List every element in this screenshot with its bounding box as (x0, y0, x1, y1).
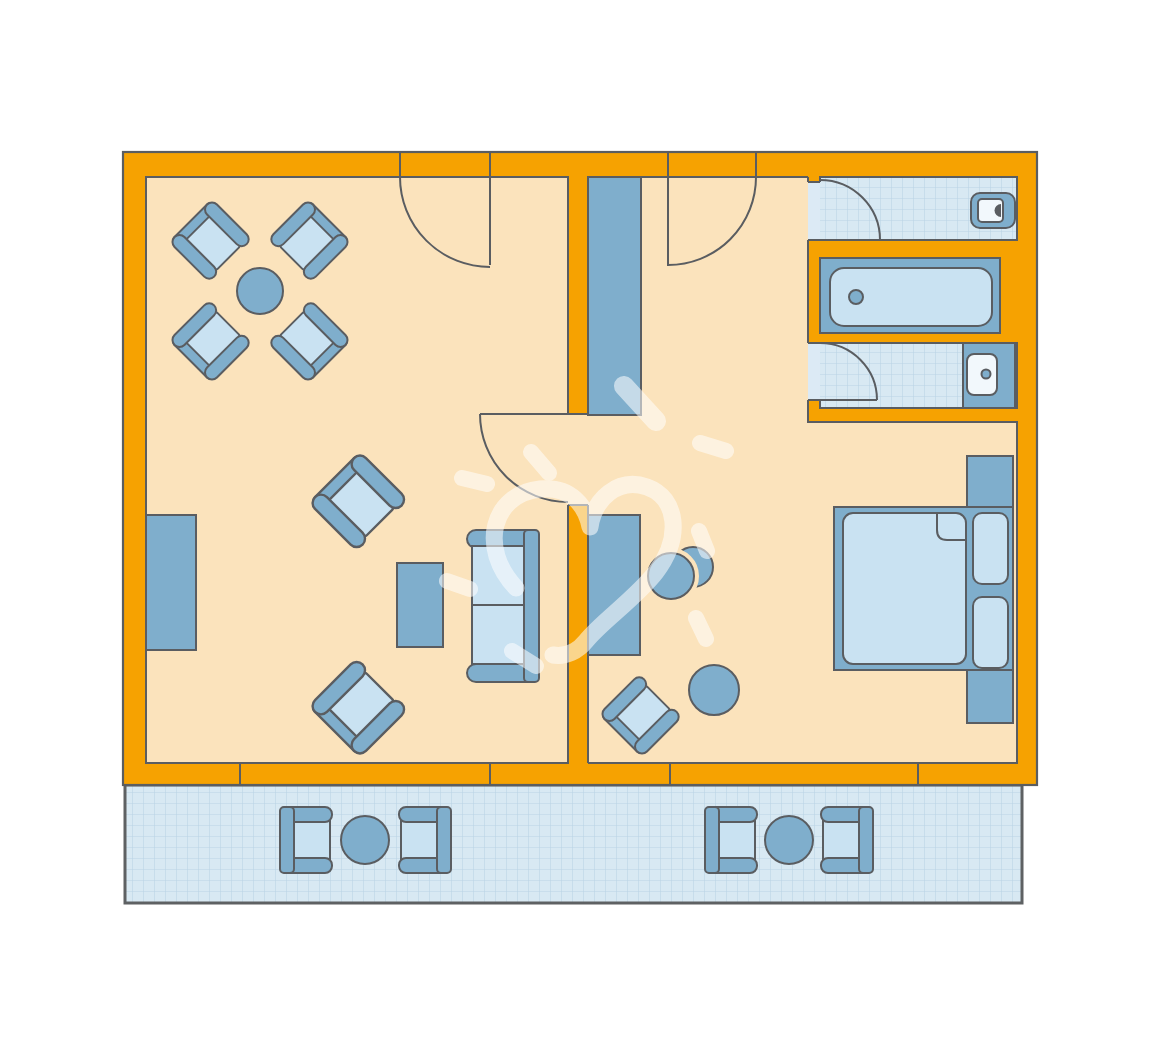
shower-doorway-floor (808, 343, 820, 400)
balcony-chair (705, 807, 757, 873)
washbasin-area (963, 343, 1015, 408)
floor-plan-drawing (0, 0, 1161, 1057)
bathtub-drain (849, 290, 863, 304)
balcony-table (765, 816, 813, 864)
bedroom-side-table (689, 665, 739, 715)
wardrobe (588, 177, 641, 415)
sideboard (146, 515, 196, 650)
bathtub (830, 268, 992, 326)
pillow (973, 597, 1008, 668)
coffee-table (397, 563, 443, 647)
floor-plan-canvas (0, 0, 1161, 1057)
balcony-chair (399, 807, 451, 873)
balcony-chair (280, 807, 332, 873)
nightstand (967, 456, 1013, 507)
balcony (125, 785, 1022, 903)
washbasin-faucet (982, 370, 991, 379)
dining-table (237, 268, 283, 314)
wc-doorway-floor (808, 182, 820, 240)
mattress (843, 513, 966, 664)
pillow (973, 513, 1008, 584)
toilet (971, 193, 1015, 228)
balcony-floor (125, 785, 1022, 903)
double-bed (834, 507, 1013, 670)
balcony-table (341, 816, 389, 864)
nightstand (967, 670, 1013, 723)
balcony-chair (821, 807, 873, 873)
